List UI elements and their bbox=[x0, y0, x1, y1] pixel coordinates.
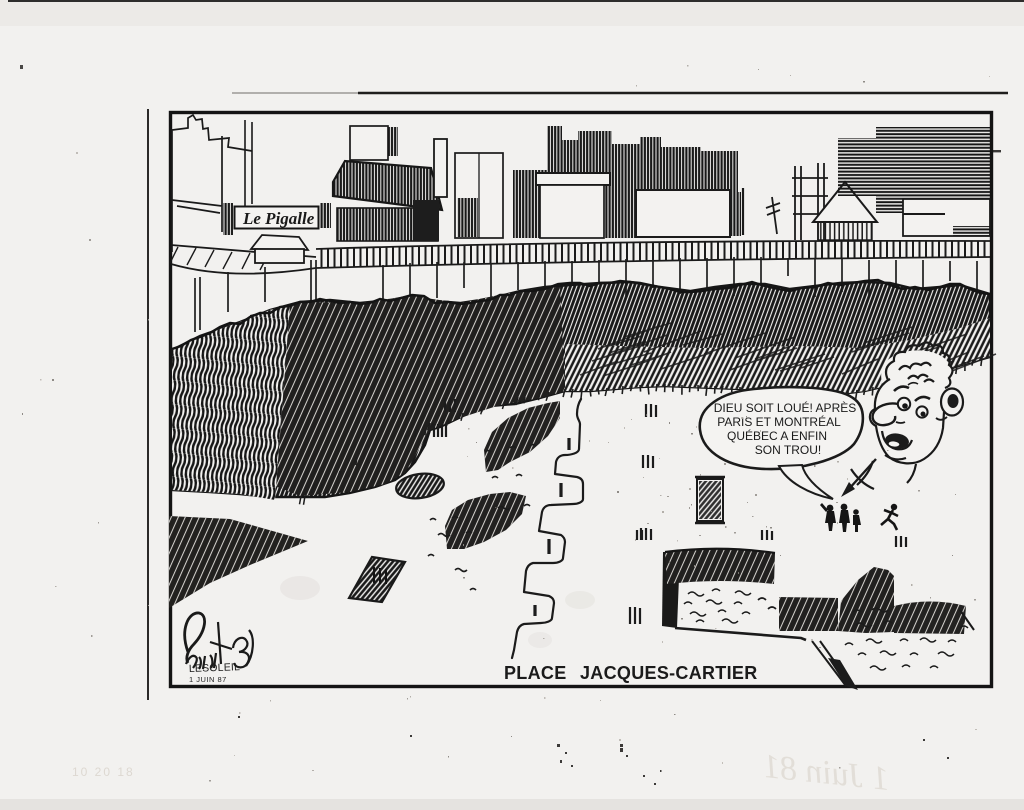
svg-text:SON TROU!: SON TROU! bbox=[755, 443, 821, 457]
svg-text:10 20 18: 10 20 18 bbox=[72, 765, 135, 779]
svg-text:1 JUIN 87: 1 JUIN 87 bbox=[189, 675, 227, 684]
svg-text:Le Pigalle: Le Pigalle bbox=[242, 209, 315, 228]
svg-text:LESOLEIL: LESOLEIL bbox=[189, 661, 241, 675]
svg-text:1 Juin 81: 1 Juin 81 bbox=[761, 748, 891, 798]
svg-text:PARIS ET MONTRÉAL: PARIS ET MONTRÉAL bbox=[717, 414, 841, 429]
svg-text:QUÉBEC A ENFIN: QUÉBEC A ENFIN bbox=[727, 428, 827, 443]
svg-text:PLACE: PLACE bbox=[504, 663, 567, 683]
svg-text:JACQUES-CARTIER: JACQUES-CARTIER bbox=[580, 663, 758, 683]
svg-text:DIEU SOIT LOUÉ! APRÈS: DIEU SOIT LOUÉ! APRÈS bbox=[714, 400, 857, 415]
